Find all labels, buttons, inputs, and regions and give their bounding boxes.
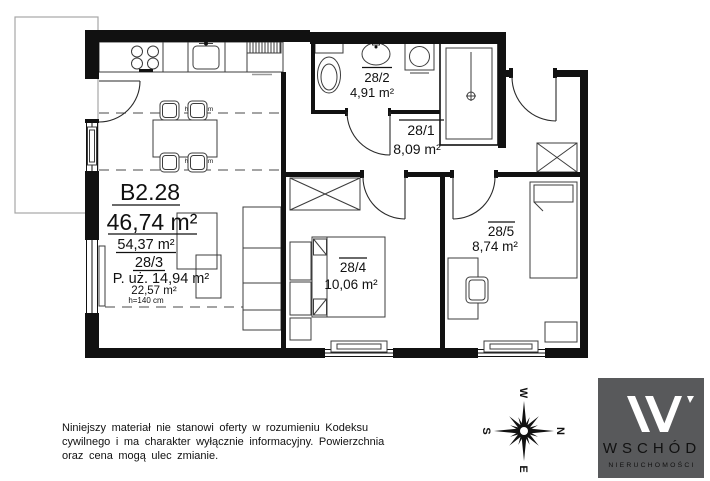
compass-east-label: E <box>517 465 529 472</box>
bedroom2-label: 28/5 8,74 m² <box>472 222 518 254</box>
door-bedroom1 <box>363 177 405 219</box>
disclaimer-line-3: oraz cena mogą ulec zmianie. <box>62 450 218 462</box>
kitchen-counter <box>99 42 283 75</box>
bathroom-area: 4,91 m² <box>350 85 395 100</box>
radiator <box>88 127 97 165</box>
hall-wardrobe <box>537 143 577 172</box>
nightstands <box>290 242 311 340</box>
radiator <box>331 341 387 352</box>
unit-label: B2.28 <box>120 179 180 205</box>
bedroom1-number: 28/4 <box>340 260 367 275</box>
radiator <box>484 341 538 352</box>
chair <box>160 153 179 172</box>
bedroom1-area: 10,06 m² <box>324 277 378 292</box>
sofa-cabinet <box>243 207 281 330</box>
logo-brand: WSCHÓD <box>603 440 701 457</box>
washbasin <box>362 41 390 65</box>
door-entrance <box>512 77 556 121</box>
bed-single <box>530 182 577 278</box>
compass-north-label: N <box>554 427 566 435</box>
disclaimer-text: Niniejszy materiał nie stanowi oferty w … <box>62 422 385 462</box>
hallway-area: 8,09 m² <box>393 141 441 157</box>
compass-south-label: S <box>480 427 492 434</box>
unit-area-secondary: 54,37 m² <box>117 237 174 253</box>
bedroom1-wardrobe <box>290 178 360 210</box>
bathroom-label: 28/2 4,91 m² <box>350 68 395 101</box>
livingroom-number: 28/3 <box>135 255 163 271</box>
disclaimer-line-2: cywilnego i ma charakter wyłącznie infor… <box>62 436 385 448</box>
chair <box>188 101 207 120</box>
floor-plan-page: h=220 cm h=220 cm <box>0 0 710 481</box>
dining-table <box>153 120 217 157</box>
bathroom-number: 28/2 <box>364 70 389 85</box>
nightstand <box>545 322 577 342</box>
door-bedroom2 <box>453 177 495 219</box>
compass-west-label: W <box>517 388 529 399</box>
toilet <box>315 42 343 93</box>
disclaimer-line-1: Niniejszy materiał nie stanowi oferty w … <box>62 422 368 434</box>
chair <box>160 101 179 120</box>
bedroom2-area: 8,74 m² <box>472 239 518 254</box>
shower <box>440 42 498 145</box>
desk-chair <box>466 277 488 303</box>
unit-label-block: B2.28 46,74 m² 54,37 m² 28/3 P. uż. 14,9… <box>107 179 210 305</box>
door-terrace <box>99 81 140 122</box>
washing-machine <box>405 42 434 73</box>
logo: WSCHÓD NIERUCHOMOŚCI <box>598 378 704 478</box>
compass-rose-icon: N E S W <box>480 388 566 473</box>
floor-plan-svg: h=220 cm h=220 cm <box>0 0 710 481</box>
unit-area: 46,74 m² <box>107 209 198 235</box>
hallway-label: 28/1 8,09 m² <box>393 120 444 157</box>
radiator <box>99 246 105 306</box>
bedroom2-number: 28/5 <box>488 224 514 239</box>
window-left-lower <box>87 240 98 313</box>
chair <box>188 153 207 172</box>
hallway-number: 28/1 <box>407 122 434 138</box>
door-bathroom <box>347 112 390 155</box>
logo-tagline: NIERUCHOMOŚCI <box>608 460 695 469</box>
livingroom-height: h=140 cm <box>128 296 164 305</box>
